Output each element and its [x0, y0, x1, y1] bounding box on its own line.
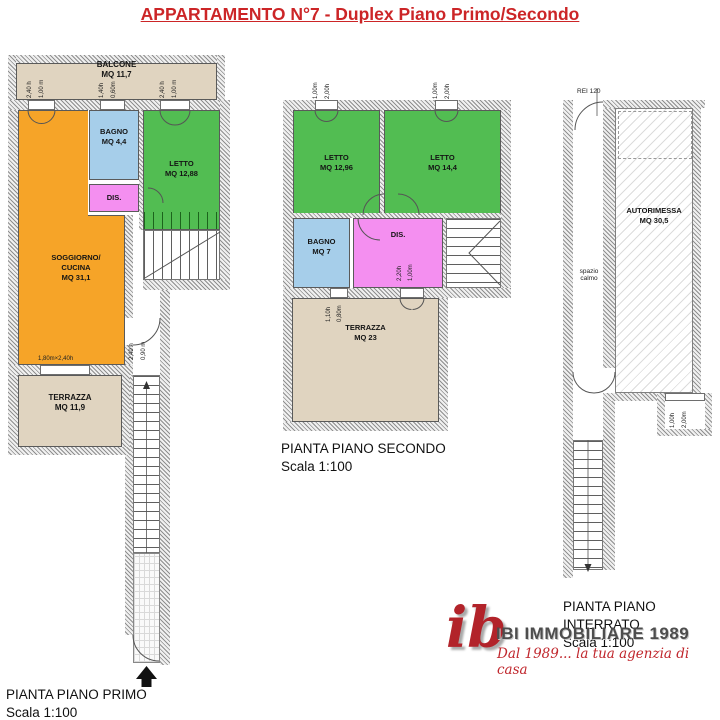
entrance-arrow-icon: [136, 666, 157, 687]
door-arc: [175, 110, 190, 125]
floor-plan-secondo: 1,00m 2,00h 1,00m 2,00h LETTO MQ 12,96 L…: [283, 85, 511, 480]
door-arc: [315, 110, 327, 122]
door-arc: [573, 372, 594, 393]
door-arc: [435, 110, 447, 122]
door-arc: [575, 102, 603, 130]
door-arc: [398, 194, 419, 215]
door-arc: [133, 318, 160, 345]
door-arc: [594, 372, 615, 393]
stair-direction-arrow-icon: [585, 564, 592, 572]
door-arc: [363, 194, 384, 215]
agency-logo-tagline: Dal 1989... la tua agenzia di casa: [497, 646, 720, 678]
door-arc: [413, 298, 425, 310]
page-title: APPARTAMENTO N°7 - Duplex Piano Primo/Se…: [0, 4, 720, 25]
floor-plan-primo: BALCONE MQ 11,7 2,40 h 1,00 m 1,40h 0,60…: [8, 55, 230, 695]
door-arc: [358, 218, 380, 240]
door-arc: [327, 110, 339, 122]
agency-logo-name: IBI IMMOBILIARE 1989: [496, 624, 689, 644]
caption-primo: PIANTA PIANO PRIMO Scala 1:100: [6, 686, 147, 720]
stair-diagonal: [469, 221, 500, 285]
door-arc: [42, 110, 56, 124]
door-arc: [28, 110, 42, 124]
caption-scale: Scala 1:100: [6, 704, 147, 720]
stair-diagonal: [145, 232, 220, 278]
caption-title: PIANTA PIANO PRIMO: [6, 686, 147, 704]
floor-plan-sheet: APPARTAMENTO N°7 - Duplex Piano Primo/Se…: [0, 0, 720, 720]
caption-title: PIANTA PIANO SECONDO: [281, 440, 446, 458]
plan-primo-linework: [8, 55, 230, 695]
door-arc: [160, 110, 175, 125]
door-arc: [148, 188, 163, 203]
door-arc: [447, 110, 459, 122]
plan-interrato-linework: [563, 88, 715, 648]
door-arc: [400, 298, 412, 310]
stair-direction-arrow-icon: [143, 381, 150, 389]
caption-secondo: PIANTA PIANO SECONDO Scala 1:100: [281, 440, 446, 476]
floor-plan-interrato: REI 120 AUTORIMESSA MQ 30,5 spazio calmo…: [563, 88, 715, 648]
door-arc: [133, 635, 159, 661]
plan-secondo-linework: [283, 85, 511, 480]
caption-scale: Scala 1:100: [281, 458, 446, 476]
